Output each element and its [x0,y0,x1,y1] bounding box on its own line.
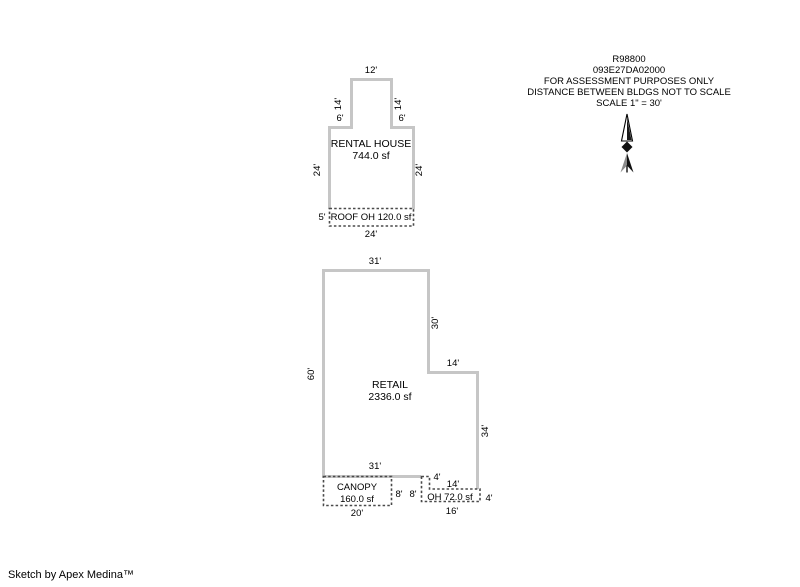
north-arrow-tail-left [621,153,628,173]
dim-rental-top: 12' [365,65,378,76]
rental-house: 12' 14' 14' 6' 6' RENTAL HOUSE 744.0 sf … [312,65,425,240]
dim-rental-side-right: 24' [414,164,425,177]
sketch-canvas: R98800 093E27DA02000 FOR ASSESSMENT PURP… [0,0,800,587]
dim-retail-top: 31' [369,256,382,267]
canopy-name: CANOPY [337,482,378,493]
north-arrow-diamond [622,142,633,153]
canopy-area: 160.0 sf [340,494,374,505]
dim-retail-step: 4' [433,472,440,483]
dim-rental-bottom: 24' [365,229,378,240]
dim-retail-ext-top: 14' [447,358,460,369]
assessor-sketch: R98800 093E27DA02000 FOR ASSESSMENT PURP… [0,0,800,587]
dim-rental-tower-right: 14' [393,98,404,111]
north-arrow-icon [621,114,634,173]
dim-rental-shoulder-left: 6' [336,113,343,124]
dim-rental-tower-left: 14' [333,98,344,111]
dim-canopy-bottom: 20' [351,508,364,519]
account-number: R98800 [612,54,645,65]
dim-rental-roof-oh-height: 5' [318,212,325,223]
rental-house-name: RENTAL HOUSE [331,138,412,150]
dim-retail-ext-bottom: 14' [447,479,460,490]
dim-canopy-right: 8' [395,489,402,500]
dim-retail-right-lower: 34' [480,425,491,438]
dim-retail-left: 60' [306,368,317,381]
dim-oh-bottom: 16' [446,506,459,517]
dim-oh-right: 4' [485,493,492,504]
dim-retail-right-upper: 30' [430,317,441,330]
parcel-number: 093E27DA02000 [593,65,665,76]
dim-retail-bottom: 31' [369,461,382,472]
retail-name: RETAIL [372,379,408,391]
retail-building: 31' 60' 30' 14' RETAIL 2336.0 sf 34' 31'… [306,256,493,519]
sketch-credit: Sketch by Apex Medina™ [8,569,134,581]
retail-area: 2336.0 sf [368,391,411,403]
dim-oh-left: 8' [409,489,416,500]
dim-rental-side-left: 24' [312,164,323,177]
oh-label: OH 72.0 sf [427,492,473,503]
disclaimer-line2: DISTANCE BETWEEN BLDGS NOT TO SCALE [527,87,731,98]
disclaimer-line1: FOR ASSESSMENT PURPOSES ONLY [544,76,715,87]
title-block: R98800 093E27DA02000 FOR ASSESSMENT PURP… [527,54,731,109]
north-arrow-tail-right [627,153,634,173]
rental-house-area: 744.0 sf [352,150,389,162]
scale-note: SCALE 1" = 30' [596,98,662,109]
dim-rental-shoulder-right: 6' [398,113,405,124]
rental-roof-oh-label: ROOF OH 120.0 sf [331,212,412,223]
